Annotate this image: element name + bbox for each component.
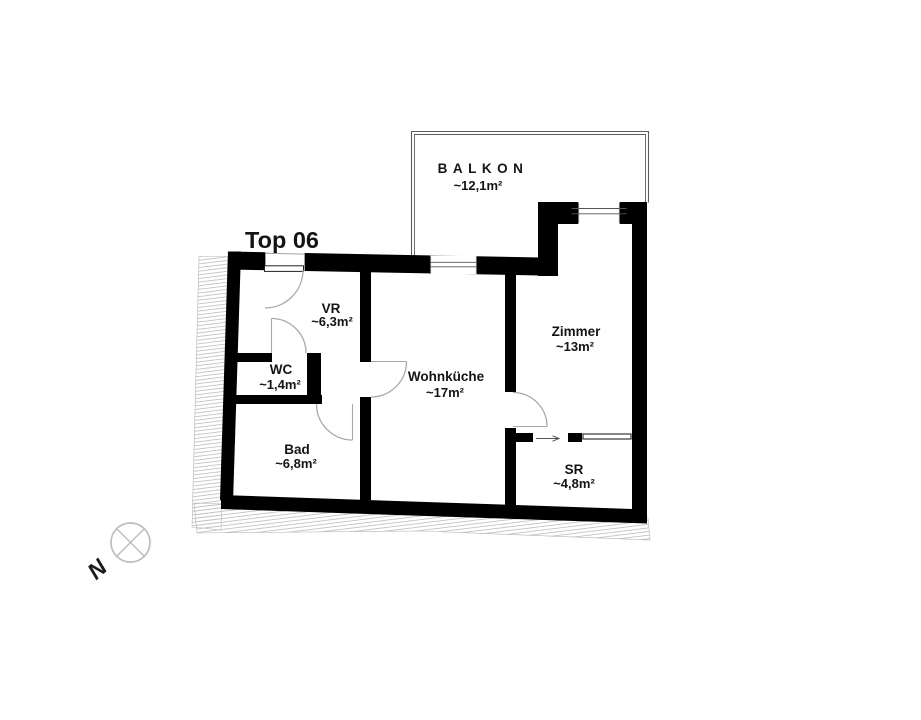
compass: N xyxy=(82,523,150,584)
room-vr: VR ~6,3m² xyxy=(311,301,353,329)
room-zimmer-area: ~13m² xyxy=(556,339,595,354)
room-wc: WC ~1,4m² xyxy=(259,362,301,392)
room-wohnkueche: Wohnküche ~17m² xyxy=(408,369,485,400)
wall-vr-divider-lower xyxy=(360,397,371,500)
window-balcony xyxy=(430,256,477,275)
compass-north-label: N xyxy=(82,554,112,585)
wohnkueche-door xyxy=(371,362,407,398)
room-balkon-area: ~12,1m² xyxy=(454,178,503,193)
zimmer-door xyxy=(513,393,547,427)
balcony-railing xyxy=(412,132,649,257)
room-sr-label: SR xyxy=(565,462,584,477)
room-wc-label: WC xyxy=(270,362,293,377)
sr-sliding-door xyxy=(536,434,631,441)
entrance-door xyxy=(265,252,306,308)
room-zimmer-label: Zimmer xyxy=(552,324,602,339)
room-sr-area: ~4,8m² xyxy=(553,476,595,491)
floor-plan-canvas: Top 06 BALKON ~12,1m² VR ~6,3m² WC ~1,4m… xyxy=(0,0,921,720)
room-wc-area: ~1,4m² xyxy=(259,377,301,392)
plan-title: Top 06 xyxy=(245,227,319,253)
wall-kitchen-divider-upper xyxy=(505,272,516,392)
wall-wc-bottom xyxy=(224,395,322,404)
room-bad-label: Bad xyxy=(284,442,310,457)
room-wohnkueche-label: Wohnküche xyxy=(408,369,485,384)
room-vr-area: ~6,3m² xyxy=(311,314,353,329)
room-zimmer: Zimmer ~13m² xyxy=(552,324,602,354)
wall-vr-divider-upper xyxy=(360,270,371,362)
room-balkon: BALKON ~12,1m² xyxy=(438,161,529,193)
room-sr: SR ~4,8m² xyxy=(553,462,595,491)
entrance-door-leaf xyxy=(265,266,304,272)
window-zimmer xyxy=(572,202,627,224)
room-wohnkueche-area: ~17m² xyxy=(426,385,465,400)
wall-sr-stub xyxy=(568,433,582,442)
wall-wc-top-left xyxy=(230,353,272,362)
room-bad: Bad ~6,8m² xyxy=(275,442,317,471)
room-balkon-label: BALKON xyxy=(438,161,529,176)
wc-door xyxy=(272,319,307,354)
wall-sr-top-left xyxy=(505,433,533,442)
room-bad-area: ~6,8m² xyxy=(275,456,317,471)
bad-door xyxy=(317,404,353,440)
floor-plan-page: Top 06 BALKON ~12,1m² VR ~6,3m² WC ~1,4m… xyxy=(0,0,921,720)
wall-right xyxy=(632,202,647,522)
